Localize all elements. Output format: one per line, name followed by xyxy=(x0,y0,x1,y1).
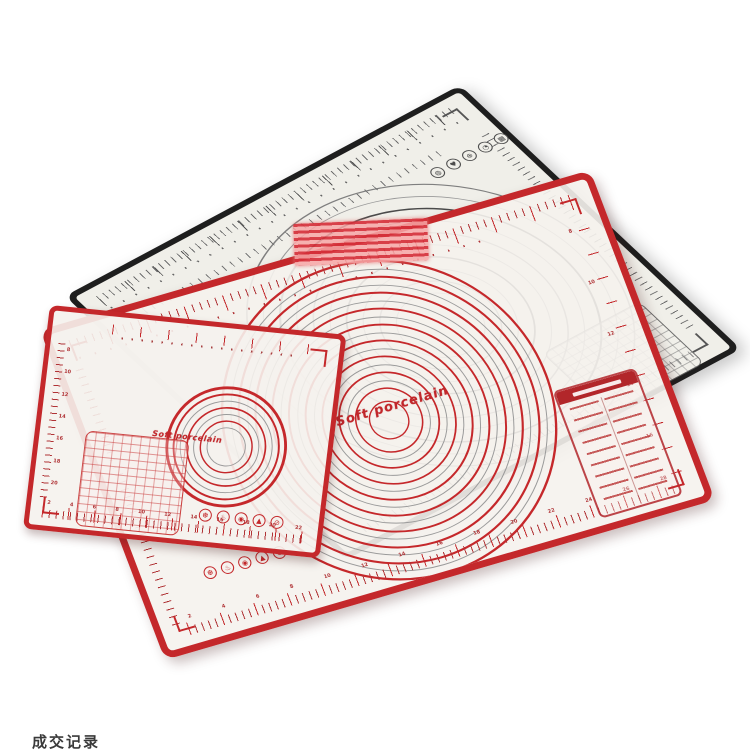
care-symbol-icon: ⊘ xyxy=(270,515,284,529)
bottom-caption-text: 成交记录 xyxy=(32,731,100,750)
ruler-number: 6 xyxy=(255,594,260,600)
ruler-number: 10 xyxy=(588,280,596,287)
ruler-number: 10 xyxy=(64,370,72,376)
care-symbol-icon: ◉ xyxy=(234,512,248,526)
ruler-number: 12 xyxy=(61,392,69,398)
ruler-number: 18 xyxy=(53,459,61,465)
ruler-number: 16 xyxy=(56,437,64,443)
product-photo-stage: ◍♥⊕◔▦ xyxy=(0,0,750,750)
small-mat-corner-mark xyxy=(42,496,61,515)
ruler-number: 8 xyxy=(66,348,70,353)
care-symbol-icon: ▲ xyxy=(252,513,266,527)
ruler-number: 8 xyxy=(115,508,119,513)
care-symbol-icon: ♨ xyxy=(216,510,230,524)
ruler-number: 8 xyxy=(568,229,573,235)
ruler-number: 12 xyxy=(164,513,172,519)
small-mat-corner-mark xyxy=(309,348,328,367)
ruler-number: 12 xyxy=(607,331,615,338)
ruler-number: 8 xyxy=(289,584,294,590)
small-red-pastry-mat: Soft porcelain 246810121416182022 810121… xyxy=(23,305,347,558)
ruler-number: 20 xyxy=(50,481,58,487)
red-scribble-censor-block xyxy=(293,218,429,266)
ruler-number: 10 xyxy=(138,510,146,516)
ruler-number: 6 xyxy=(92,505,96,510)
ruler-number: 14 xyxy=(190,515,198,521)
care-symbol-icon: ❆ xyxy=(198,508,212,522)
ruler-number: 4 xyxy=(70,503,74,508)
ruler-number: 14 xyxy=(58,414,66,420)
ruler-number: 22 xyxy=(295,526,303,532)
ruler-number: 4 xyxy=(221,604,226,610)
